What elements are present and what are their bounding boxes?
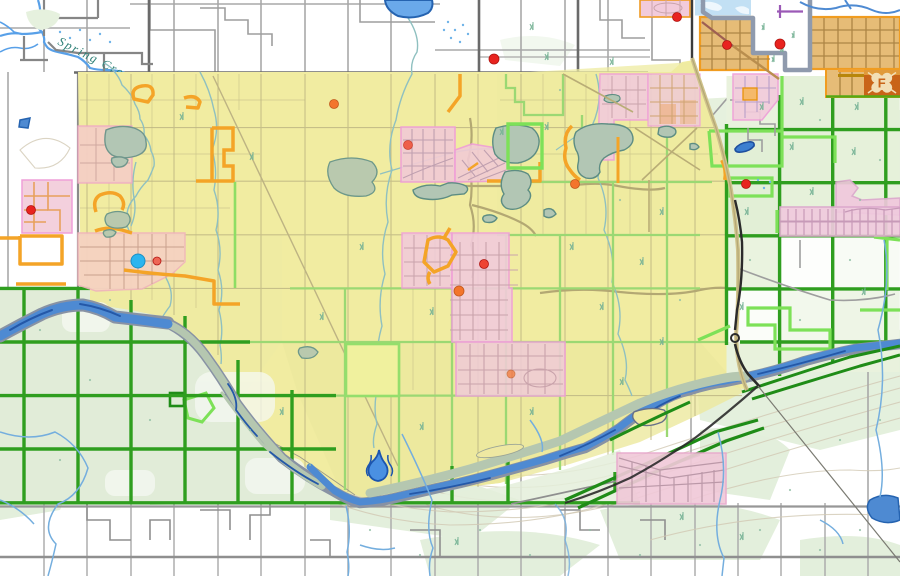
svg-text:F: F — [878, 75, 886, 90]
